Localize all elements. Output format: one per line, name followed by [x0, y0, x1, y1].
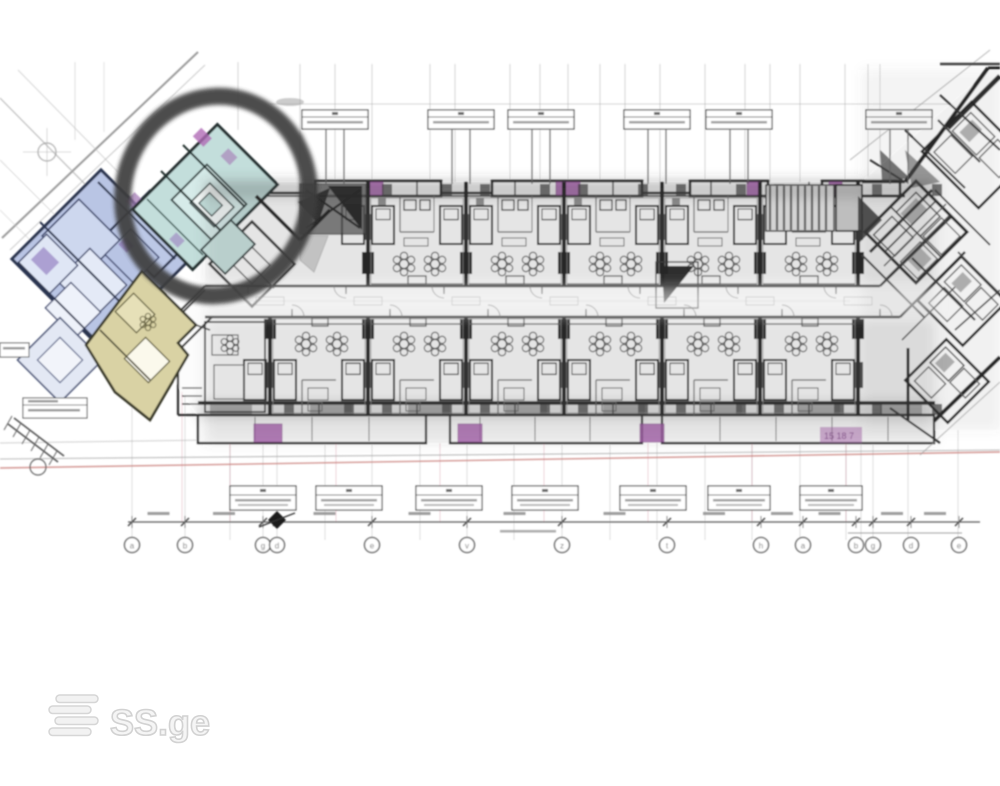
svg-text:g: g — [871, 542, 875, 551]
svg-text:z: z — [560, 542, 564, 551]
svg-text:b: b — [183, 542, 188, 551]
svg-text:g: g — [261, 542, 265, 551]
svg-text:a: a — [130, 542, 135, 551]
svg-text:b: b — [854, 542, 859, 551]
svg-text:v: v — [465, 542, 469, 551]
svg-text:d: d — [275, 542, 279, 551]
svg-text:e: e — [370, 542, 375, 551]
svg-text:SS.ge: SS.ge — [110, 702, 210, 743]
svg-text:d: d — [909, 542, 913, 551]
svg-text:a: a — [801, 542, 806, 551]
svg-text:h: h — [759, 542, 763, 551]
svg-text:e: e — [957, 542, 962, 551]
